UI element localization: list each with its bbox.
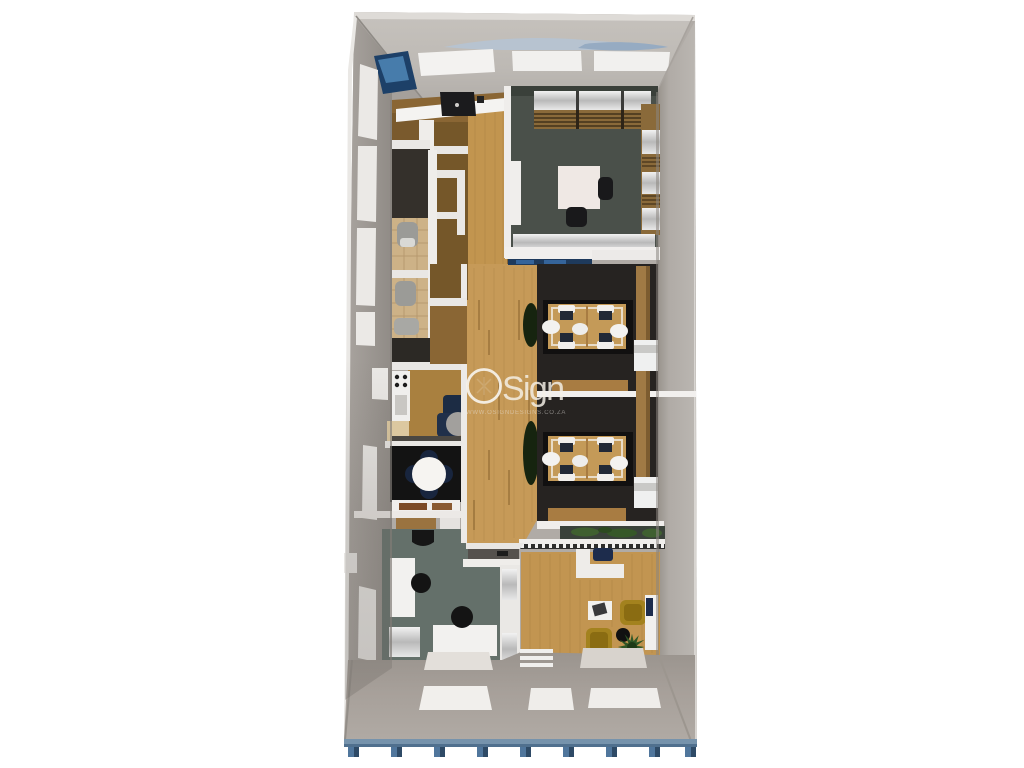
svg-text:WWW.OSIGNDESIGNS.CO.ZA: WWW.OSIGNDESIGNS.CO.ZA <box>466 410 566 416</box>
svg-text:Sign: Sign <box>502 370 565 408</box>
